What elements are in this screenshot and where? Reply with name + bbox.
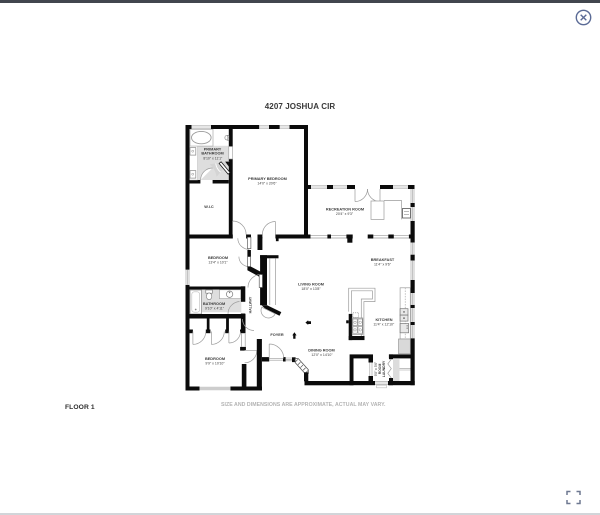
svg-text:RECREATION ROOM: RECREATION ROOM <box>326 207 364 211</box>
svg-text:W.I.C: W.I.C <box>204 205 214 209</box>
svg-text:14'0" x 20'6": 14'0" x 20'6" <box>257 182 277 186</box>
svg-text:BEDROOM: BEDROOM <box>205 357 225 361</box>
svg-text:20'4" x 9'3": 20'4" x 9'3" <box>336 212 354 216</box>
svg-text:HALLWAY: HALLWAY <box>249 296 253 313</box>
svg-text:11'4" x 9'6": 11'4" x 9'6" <box>374 263 392 267</box>
svg-text:BATHROOM: BATHROOM <box>201 152 223 156</box>
svg-text:18'0" x 13'8": 18'0" x 13'8" <box>301 287 321 291</box>
svg-text:DINING ROOM: DINING ROOM <box>308 348 334 352</box>
svg-text:BEDROOM: BEDROOM <box>208 256 228 260</box>
svg-text:12'0" x 14'10": 12'0" x 14'10" <box>311 353 333 357</box>
svg-text:8'10" x 11'1": 8'10" x 11'1" <box>203 157 223 161</box>
svg-text:FOYER: FOYER <box>270 333 283 337</box>
svg-text:BREAKFAST: BREAKFAST <box>371 258 395 262</box>
svg-text:11'4" x 12'10": 11'4" x 12'10" <box>373 323 395 327</box>
svg-text:LAUNDRY: LAUNDRY <box>382 360 386 377</box>
svg-text:9'9" x 10'10": 9'9" x 10'10" <box>205 362 225 366</box>
svg-text:LIVING ROOM: LIVING ROOM <box>298 283 324 287</box>
svg-text:PRIMARY BEDROOM: PRIMARY BEDROOM <box>248 177 287 181</box>
svg-text:13'4" x 10'1": 13'4" x 10'1" <box>208 261 228 265</box>
svg-text:9'10" x 4'11": 9'10" x 4'11" <box>205 307 225 311</box>
svg-text:KITCHEN: KITCHEN <box>375 318 392 322</box>
svg-text:BATHROOM: BATHROOM <box>203 302 225 306</box>
